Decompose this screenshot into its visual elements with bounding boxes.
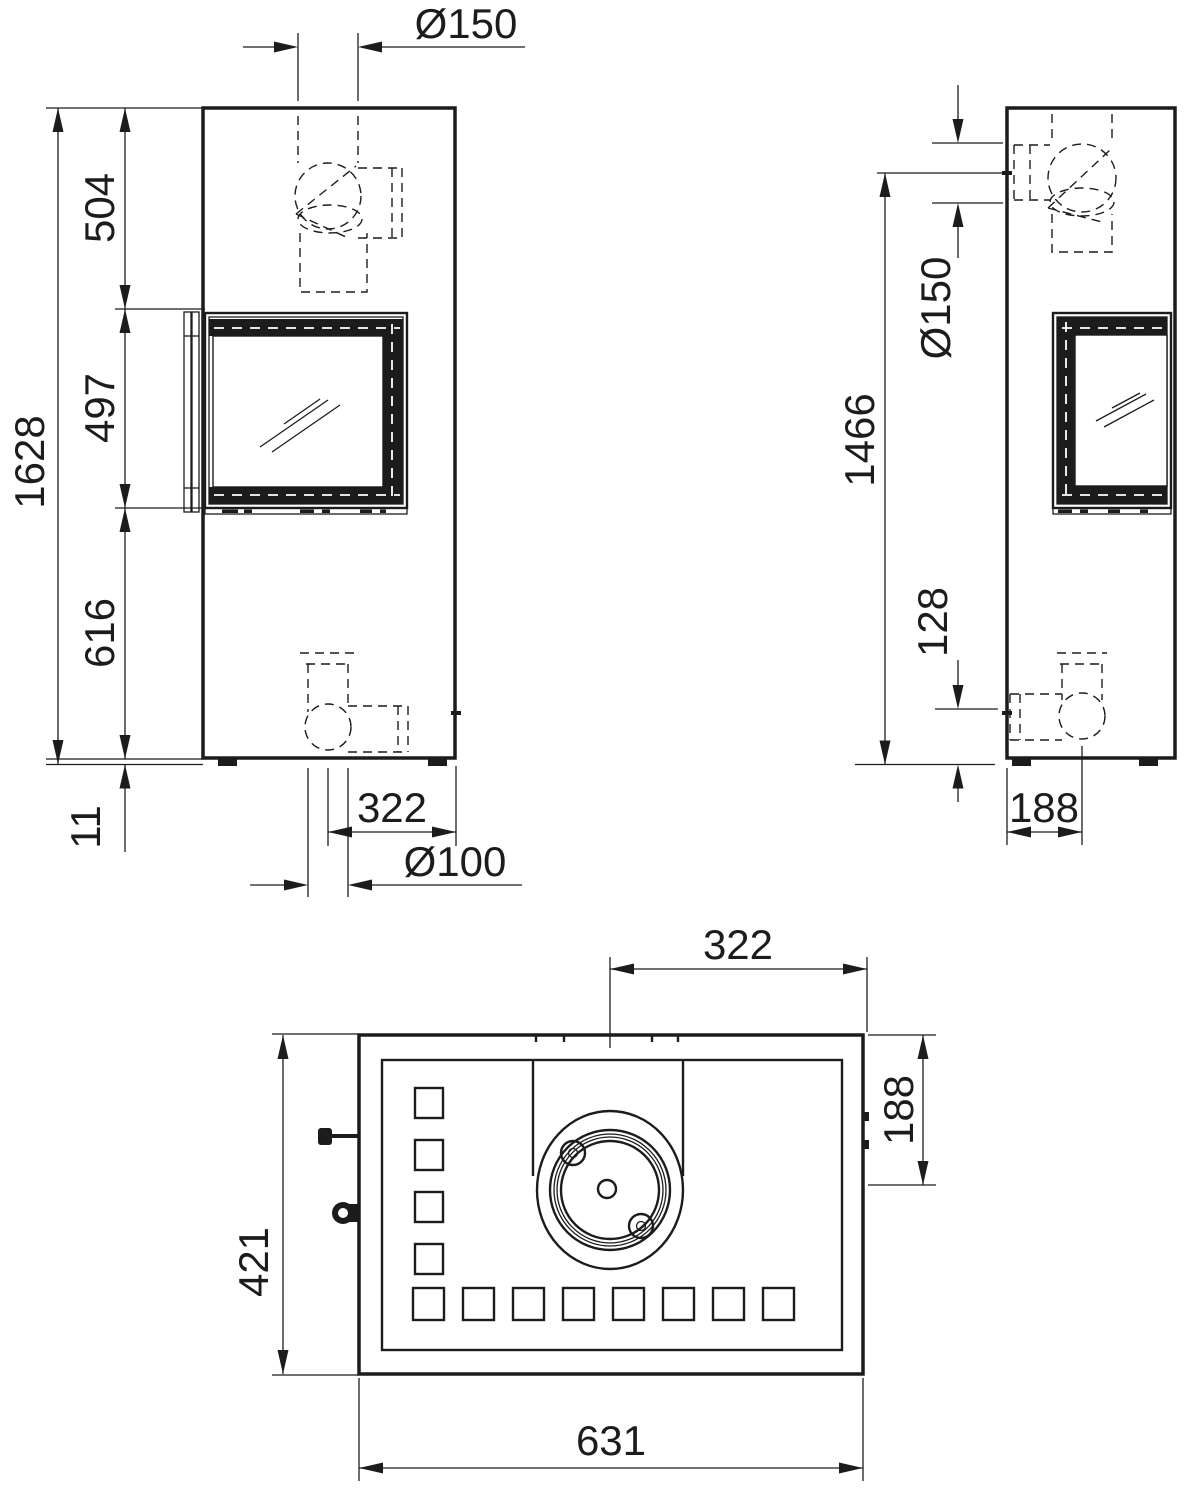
front-frame-band-right	[383, 319, 403, 504]
dim-side-flue-diameter: Ø150	[912, 257, 959, 360]
top-flue-collar	[537, 1111, 683, 1269]
dim-side-outlet-depth-offset: 188	[1009, 784, 1079, 831]
side-dimensions: Ø150 1466 128 188	[836, 85, 1082, 845]
top-left-square-vents	[415, 1088, 443, 1274]
side-foot-front	[1012, 759, 1031, 766]
side-top-flue-elbow	[1014, 114, 1116, 252]
dim-side-rear-outlet-height: 1466	[836, 393, 883, 486]
side-bottom-air-elbow	[1010, 653, 1107, 740]
top-body-outline	[359, 1035, 863, 1374]
top-dimensions: 322 188 421 631	[230, 921, 936, 1481]
side-view	[1002, 108, 1175, 766]
side-glass	[1075, 335, 1167, 486]
top-front-square-vents	[413, 1288, 794, 1320]
front-top-flue-elbow	[295, 116, 402, 292]
side-frame-band-top	[1057, 317, 1167, 335]
dim-front-top-to-window: 504	[76, 173, 123, 243]
side-frame-band-bottom	[1057, 486, 1167, 504]
dim-side-air-inlet-height: 128	[909, 587, 956, 657]
front-door-hinge-strip-outer	[184, 312, 191, 512]
dim-front-flue-diameter: Ø150	[415, 0, 518, 47]
top-view	[318, 1035, 869, 1374]
front-door-hinge-strip-inner	[192, 312, 199, 512]
dim-top-width: 631	[576, 1417, 646, 1464]
front-foot-left	[218, 759, 237, 766]
side-window-door	[1053, 313, 1171, 514]
front-foot-right	[428, 759, 447, 766]
dim-front-base-clearance: 11	[62, 805, 109, 849]
dim-front-outlet-offset: 322	[357, 784, 427, 831]
front-window-door	[184, 312, 407, 514]
top-collar-screw-lug-1	[561, 1141, 585, 1165]
side-foot-back	[1139, 759, 1158, 766]
dim-top-depth: 421	[230, 1227, 277, 1297]
dim-front-window-height: 497	[76, 373, 123, 443]
top-door-handle	[318, 1128, 359, 1145]
dim-front-window-to-base: 616	[76, 598, 123, 668]
front-bottom-air-elbow	[300, 653, 408, 752]
dim-top-flue-offset-y: 188	[875, 1075, 922, 1145]
dim-front-air-inlet-diameter: Ø100	[404, 838, 507, 885]
technical-drawing-canvas: Ø150 1628 504 497 616 11 322	[0, 0, 1200, 1490]
front-glass	[213, 336, 383, 487]
stove-dimension-drawing: Ø150 1628 504 497 616 11 322	[0, 0, 1200, 1490]
front-view	[184, 108, 461, 766]
dim-top-flue-offset-x: 322	[703, 921, 773, 968]
top-collar-center-hole	[598, 1180, 616, 1198]
dim-front-overall-height: 1628	[6, 415, 53, 508]
top-door-hinge	[332, 1202, 359, 1224]
